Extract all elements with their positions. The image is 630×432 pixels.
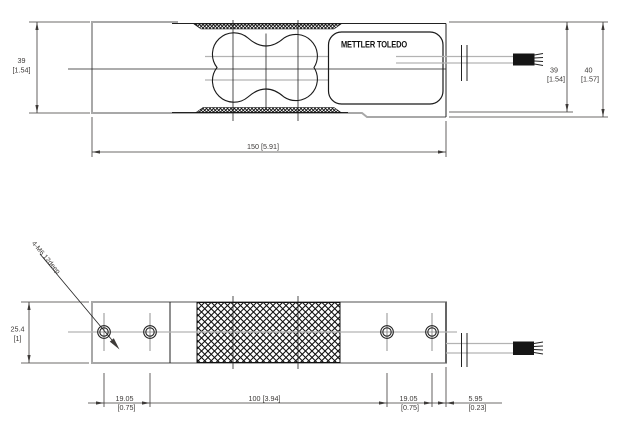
dim-value-in: [0.75] (118, 403, 136, 412)
dim-value-in: [1.54] (13, 66, 31, 75)
dim-value: 150 [5.91] (247, 142, 279, 151)
dim-value: 39 (18, 56, 26, 65)
dim-length: 150 [5.91] (92, 117, 446, 157)
dim-hole-row: 19.05 [0.75] 100 [3.94] 19.05 [0.75] 5.9… (88, 367, 502, 412)
side-view: METTLER TOLEDO 39 [1.54] 150 [ (13, 20, 608, 157)
thread-callout-text: 4-M6 12deep (30, 240, 61, 275)
plan-view: 4-M6 12deep 25.4 [1] (11, 240, 544, 412)
wire-strands (535, 54, 544, 66)
dim-value-in: [0.75] (401, 403, 419, 412)
dim-value-in: [1] (14, 334, 22, 343)
load-cell-body-outline (92, 22, 446, 117)
wire-strands (534, 342, 543, 354)
top-hatch-strip (194, 24, 341, 29)
dim-height-left: 39 [1.54] (13, 22, 90, 113)
dim-value: 100 [3.94] (249, 394, 281, 403)
brand-label: METTLER TOLEDO (341, 40, 407, 50)
dim-value: 19.05 (116, 394, 134, 403)
cable-connector (513, 342, 534, 356)
dim-value: 25.4 (11, 325, 25, 334)
dim-value-in: [0.23] (469, 403, 487, 412)
thread-callout: 4-M6 12deep (30, 240, 120, 349)
technical-drawing: METTLER TOLEDO 39 [1.54] 150 [ (0, 0, 630, 432)
cable-connector (513, 54, 535, 66)
dim-value-in: [1.57] (581, 75, 599, 84)
dim-value: 19.05 (400, 394, 418, 403)
bottom-hatch-strip (196, 108, 341, 113)
dim-height-right: 39 [1.54] 40 [1.57] (449, 22, 608, 117)
dim-value-in: [1.54] (547, 75, 565, 84)
dim-value: 39 (550, 66, 558, 75)
dim-value: 40 (585, 66, 593, 75)
dim-value: 5.95 (469, 394, 483, 403)
load-cell-drawing: METTLER TOLEDO 39 [1.54] 150 [ (0, 0, 630, 432)
flexure-cutout (212, 33, 317, 102)
